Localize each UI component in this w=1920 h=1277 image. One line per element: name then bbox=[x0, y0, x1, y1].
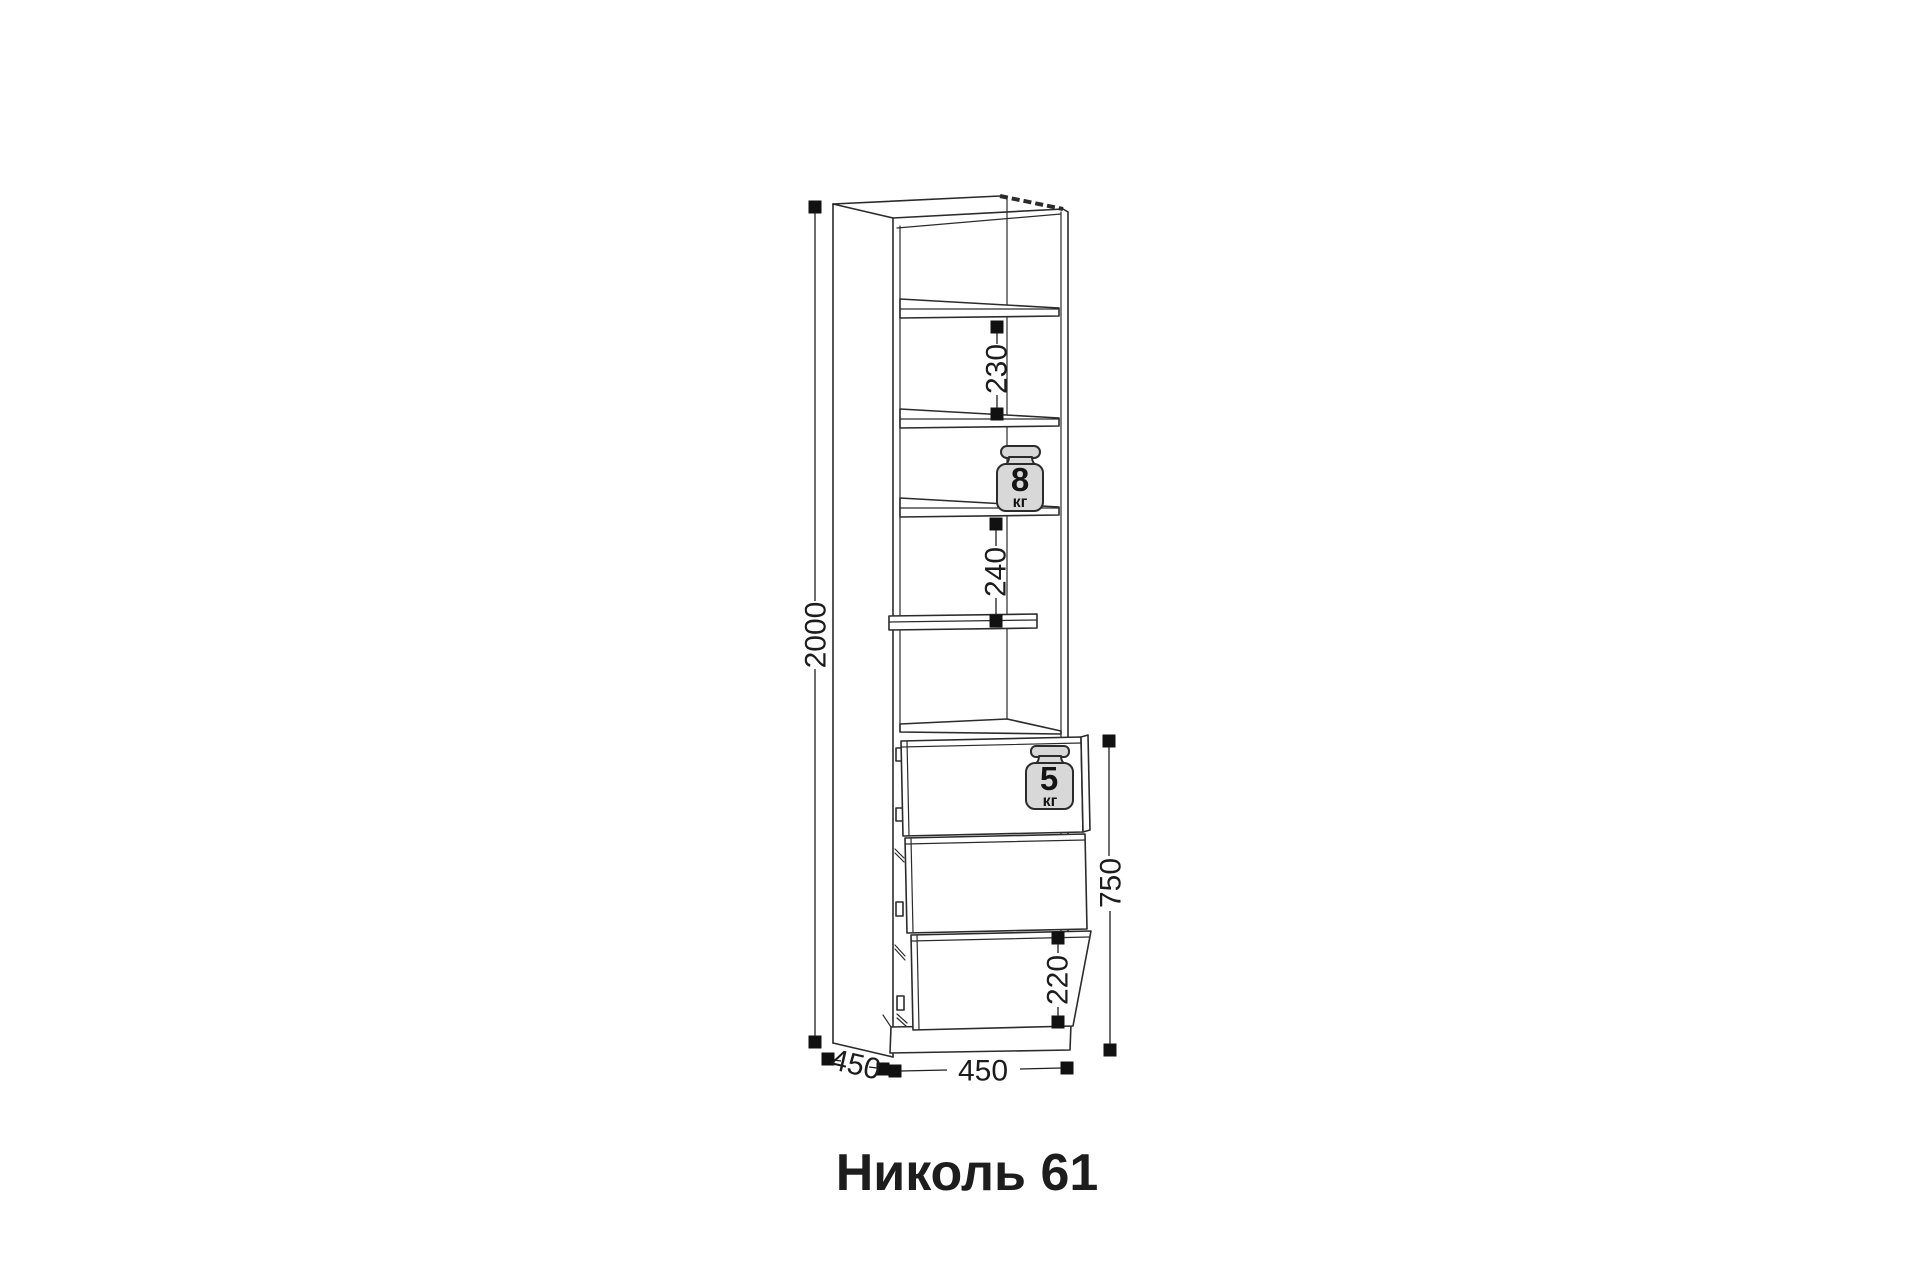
drawer-load-unit: кг bbox=[1043, 793, 1058, 810]
dimension-marker bbox=[1103, 735, 1116, 748]
dimension-marker bbox=[991, 408, 1004, 421]
furniture-dimension-drawing: 8 кг 5 кг 2000 230 240 750 220 bbox=[0, 0, 1920, 1277]
drawer-load-value: 5 bbox=[1040, 760, 1058, 797]
dimension-label-lower-gap: 240 bbox=[980, 547, 1013, 597]
dimension-marker bbox=[1061, 1062, 1074, 1075]
dimension-marker bbox=[809, 1036, 822, 1049]
dimension-marker bbox=[990, 518, 1003, 531]
dimension-label-drawer-section: 750 bbox=[1095, 858, 1128, 908]
dimension-marker bbox=[1104, 1044, 1117, 1057]
runner-clip bbox=[897, 996, 904, 1010]
dimension-marker bbox=[991, 321, 1004, 334]
drawer-middle bbox=[905, 834, 1087, 933]
dimension-label-bottom-drawer: 220 bbox=[1042, 955, 1075, 1005]
shelf-load-value: 8 bbox=[1011, 461, 1029, 498]
weight-icon-8kg: 8 кг bbox=[997, 446, 1043, 511]
dimension-marker bbox=[990, 615, 1003, 628]
dimension-marker bbox=[889, 1065, 902, 1078]
runner-clip bbox=[896, 902, 903, 916]
drawer-middle-front bbox=[905, 834, 1087, 933]
dimension-label-width: 450 bbox=[958, 1055, 1008, 1088]
dimension-marker bbox=[1052, 932, 1065, 945]
dimension-marker bbox=[1052, 1016, 1065, 1029]
drawer-top-side bbox=[1081, 735, 1090, 832]
dimension-label-upper-gap: 230 bbox=[981, 344, 1014, 394]
dimension-label-total-height: 2000 bbox=[800, 602, 833, 669]
shelf-load-unit: кг bbox=[1013, 494, 1028, 511]
product-title: Николь 61 bbox=[836, 1144, 1099, 1202]
weight-icon-5kg: 5 кг bbox=[1026, 746, 1073, 810]
dimension-marker bbox=[809, 201, 822, 214]
